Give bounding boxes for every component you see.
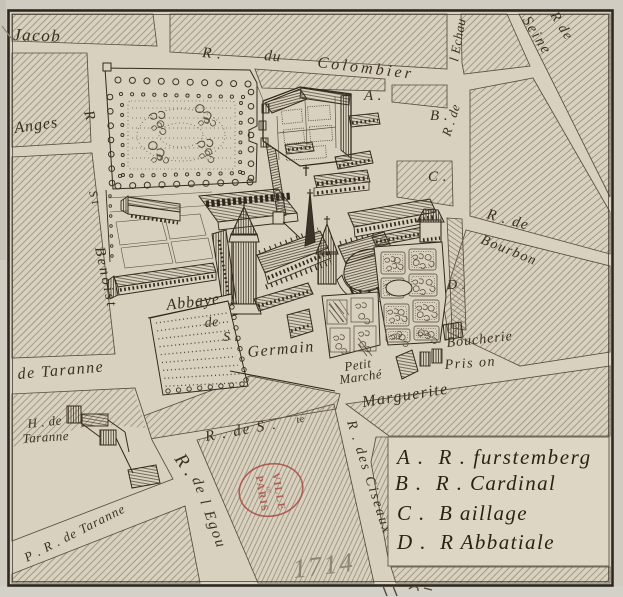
svg-text:A . R . furstemberg: A . R . furstemberg	[395, 445, 592, 469]
svg-text:B .: B .	[430, 108, 448, 124]
svg-text:C . B aillage: C . B aillage	[397, 501, 528, 525]
svg-text:B . R . Cardinal: B . R . Cardinal	[395, 471, 556, 495]
svg-text:R .: R .	[201, 45, 223, 63]
svg-text:de: de	[204, 315, 219, 331]
svg-text:du: du	[264, 48, 282, 65]
svg-text:S .: S .	[223, 330, 239, 345]
svg-text:A .: A .	[363, 88, 382, 104]
svg-text:Jacob: Jacob	[13, 25, 62, 46]
svg-text:D .: D .	[446, 278, 466, 293]
svg-text:C .: C .	[428, 169, 447, 185]
svg-text:D . R Abbatiale: D . R Abbatiale	[396, 530, 555, 554]
